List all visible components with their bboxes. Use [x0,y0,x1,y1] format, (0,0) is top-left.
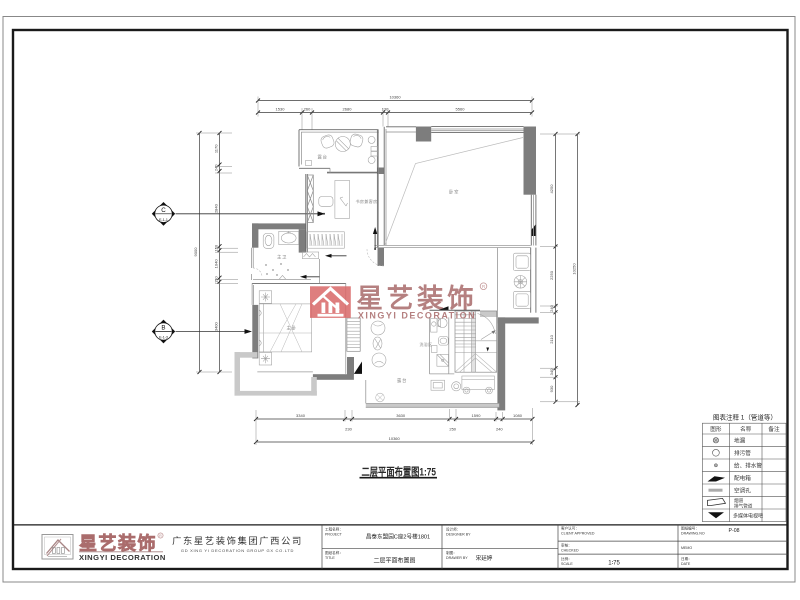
svg-text:150: 150 [213,276,218,283]
svg-text:露台: 露台 [397,377,407,384]
svg-text:图纸编号：: 图纸编号： [681,526,699,531]
svg-text:3340: 3340 [296,413,306,418]
svg-text:DRAWING.NO: DRAWING.NO [681,532,705,536]
svg-text:主卧: 主卧 [287,325,297,332]
svg-text:图表注释 1（管道等）: 图表注释 1（管道等） [713,413,777,422]
svg-text:230: 230 [345,427,352,432]
svg-text:TITLE: TITLE [325,556,335,560]
svg-text:240: 240 [496,427,503,432]
svg-text:露台: 露台 [318,154,328,161]
svg-text:5560: 5560 [456,107,466,112]
svg-text:3630: 3630 [396,413,406,418]
svg-text:地漏: 地漏 [734,437,746,445]
svg-text:1530: 1530 [276,107,286,112]
svg-text:GD XING YI DECORATION GROUP GX: GD XING YI DECORATION GROUP GX CO.LTD [181,548,294,553]
svg-text:二层平面布置图: 二层平面布置图 [373,557,415,565]
svg-text:CHECKED: CHECKED [561,549,579,553]
svg-text:10250: 10250 [571,263,576,275]
svg-text:2250: 2250 [549,270,554,280]
svg-text:1040: 1040 [213,259,218,269]
svg-text:9000: 9000 [193,247,198,257]
svg-text:工程名称：: 工程名称： [325,527,343,532]
svg-text:MEMO: MEMO [681,546,692,550]
svg-text:日期：: 日期： [681,556,692,561]
svg-text:1170: 1170 [213,144,218,153]
svg-text:XINGYI DECORATION: XINGYI DECORATION [79,553,166,562]
svg-text:比例：: 比例： [561,556,572,561]
svg-text:排污管: 排污管 [734,449,751,457]
svg-text:备注: 备注 [768,425,780,433]
svg-text:DRAWER BY: DRAWER BY [446,556,468,560]
svg-text:C: C [161,207,166,214]
svg-text:多媒体电视吧: 多媒体电视吧 [733,513,763,520]
svg-text:图纸名称：: 图纸名称： [325,550,343,555]
svg-text:B: B [161,325,165,332]
svg-text:客户认可：: 客户认可： [561,526,579,531]
svg-text:4250: 4250 [549,184,554,194]
svg-text:1080: 1080 [513,413,523,418]
svg-text:设计师：: 设计师： [446,527,460,532]
svg-text:卧室: 卧室 [449,189,459,196]
svg-text:给、排水管: 给、排水管 [734,462,762,470]
svg-text:1590: 1590 [472,413,482,418]
svg-text:SCALE: SCALE [561,562,573,566]
svg-text:图形: 图形 [710,425,722,433]
svg-text:240: 240 [213,164,218,171]
svg-text:排气管道: 排气管道 [734,503,753,510]
svg-text:340: 340 [549,368,554,375]
svg-text:10360: 10360 [389,436,401,441]
svg-text:250: 250 [449,427,456,432]
svg-text:二层平面布置图1:75: 二层平面布置图1:75 [362,464,437,478]
svg-text:2110: 2110 [549,334,554,343]
svg-text:星艺装饰: 星艺装饰 [356,284,477,314]
svg-text:审核：: 审核： [561,543,572,548]
svg-text:昌泰东盟园C座2号楼1801: 昌泰东盟园C座2号楼1801 [366,533,430,541]
svg-text:P-08: P-08 [729,528,740,534]
svg-text:E-1-3: E-1-3 [159,336,168,340]
svg-text:空调孔: 空调孔 [734,487,751,495]
svg-text:宋廷婷: 宋廷婷 [476,554,493,562]
svg-text:R: R [482,284,486,289]
svg-text:E-1-1: E-1-1 [159,218,168,222]
svg-text:240: 240 [549,304,554,311]
svg-text:PROJECT: PROJECT [325,533,343,537]
svg-text:主卫: 主卫 [277,254,287,260]
svg-text:CLIENT APPROVED: CLIENT APPROVED [561,532,595,536]
svg-text:星艺装饰: 星艺装饰 [79,533,157,554]
svg-text:2840: 2840 [213,203,218,213]
svg-text:260: 260 [304,107,311,112]
svg-text:DATE: DATE [681,562,691,566]
svg-text:150: 150 [213,244,218,251]
svg-text:DESIGNER BY: DESIGNER BY [446,533,471,537]
svg-text:书房兼客房: 书房兼客房 [356,198,378,204]
svg-text:制图：: 制图： [446,550,457,555]
svg-text:洗浴区: 洗浴区 [420,341,433,347]
svg-text:XINGYI DECORATION: XINGYI DECORATION [358,311,476,321]
svg-text:名称: 名称 [740,425,752,433]
svg-text:10360: 10360 [389,95,401,100]
svg-text:1∶75: 1∶75 [608,561,620,567]
svg-text:3400: 3400 [213,321,218,331]
svg-text:930: 930 [549,385,554,392]
svg-text:配电箱: 配电箱 [734,474,751,482]
svg-text:广东星艺装饰集团广西公司: 广东星艺装饰集团广西公司 [172,535,303,546]
svg-text:2680: 2680 [343,107,353,112]
